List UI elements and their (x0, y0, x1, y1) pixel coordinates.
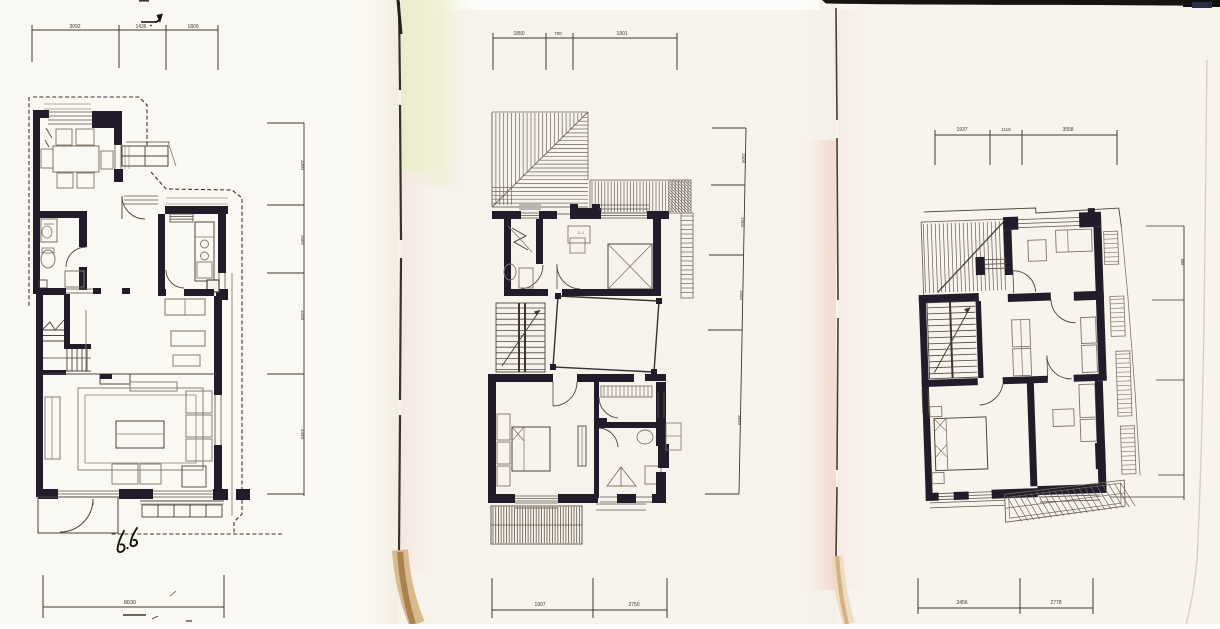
svg-text:2602: 2602 (300, 235, 305, 246)
svg-text:1500: 1500 (741, 153, 746, 164)
svg-text:1901: 1901 (616, 31, 627, 37)
svg-text:G-1: G-1 (578, 230, 585, 235)
svg-text:1850: 1850 (513, 31, 524, 37)
svg-text:3640: 3640 (737, 415, 742, 426)
svg-text:2778: 2778 (1050, 600, 1061, 606)
svg-text:2750: 2750 (628, 602, 639, 608)
svg-text:1800: 1800 (187, 24, 198, 30)
svg-text:700: 700 (554, 31, 562, 36)
svg-text:4448: 4448 (300, 429, 305, 440)
svg-text:3092: 3092 (69, 24, 80, 30)
svg-text:3338: 3338 (300, 310, 305, 321)
svg-text:1436: 1436 (135, 24, 146, 30)
svg-text:2456: 2456 (956, 600, 967, 606)
svg-text:888: 888 (1180, 259, 1185, 266)
svg-text:1553: 1553 (739, 290, 744, 301)
svg-text:1937: 1937 (956, 127, 967, 133)
svg-text:3558: 3558 (1062, 127, 1073, 133)
svg-text:8630: 8630 (124, 600, 136, 606)
svg-text:1907: 1907 (534, 602, 545, 608)
svg-text:1118: 1118 (1001, 127, 1011, 132)
svg-text:3300: 3300 (300, 160, 305, 171)
svg-text:1903: 1903 (740, 217, 745, 228)
